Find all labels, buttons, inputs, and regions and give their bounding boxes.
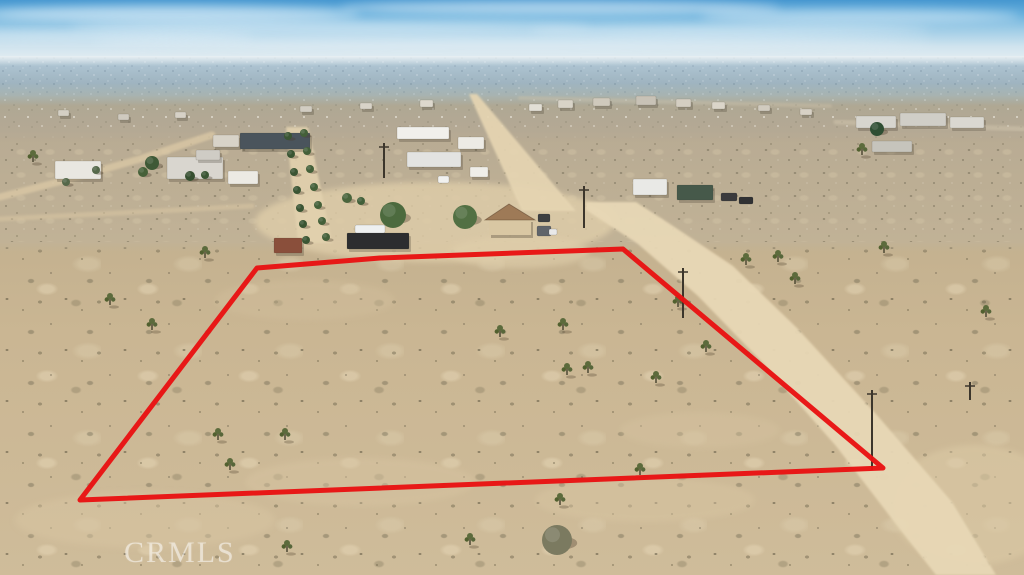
- joshua-tree-shadow: [559, 505, 569, 508]
- joshua-tree: [701, 344, 705, 348]
- joshua-tree: [495, 329, 499, 333]
- cloud: [700, 9, 1020, 23]
- mobile-home: [900, 113, 946, 126]
- small-shed: [470, 167, 488, 177]
- joshua-tree: [987, 309, 991, 313]
- distant-house: [118, 114, 129, 120]
- tree-highlight: [63, 179, 67, 183]
- joshua-tree: [231, 462, 235, 466]
- joshua-tree: [568, 367, 572, 371]
- joshua-tree: [747, 257, 751, 261]
- joshua-tree-shadow: [794, 284, 804, 287]
- rv-trailer: [633, 179, 667, 195]
- joshua-tree: [555, 497, 559, 501]
- joshua-tree-shadow: [883, 253, 893, 256]
- tree-highlight: [358, 198, 362, 202]
- vehicle: [739, 197, 753, 204]
- distant-house: [300, 106, 312, 112]
- joshua-tree: [773, 254, 777, 258]
- joshua-tree: [657, 375, 661, 379]
- joshua-tree: [863, 147, 867, 151]
- joshua-tree: [28, 154, 32, 158]
- joshua-tree-shadow: [705, 352, 715, 355]
- property-boundary-line: [80, 249, 883, 500]
- joshua-tree: [501, 329, 505, 333]
- tree-highlight: [323, 234, 327, 238]
- joshua-tree-shadow: [286, 552, 296, 555]
- joshua-tree: [635, 467, 639, 471]
- joshua-tree-shadow: [655, 383, 665, 386]
- joshua-tree: [213, 432, 217, 436]
- tree-highlight: [93, 167, 97, 171]
- tree-highlight: [285, 133, 289, 137]
- joshua-tree: [561, 497, 565, 501]
- joshua-tree-shadow: [562, 330, 572, 333]
- scene-overlay: [0, 0, 1024, 575]
- tree-highlight: [146, 157, 153, 164]
- joshua-tree-shadow: [229, 470, 239, 473]
- vehicle: [721, 193, 737, 201]
- joshua-tree-shadow: [32, 162, 42, 165]
- tree-highlight: [202, 172, 206, 176]
- distant-house: [758, 105, 770, 111]
- joshua-tree: [280, 432, 284, 436]
- distant-house: [676, 99, 691, 107]
- distant-house: [558, 100, 573, 108]
- cloud: [92, 36, 932, 48]
- trailer: [458, 137, 484, 149]
- long-trailer: [407, 152, 461, 167]
- joshua-tree: [282, 544, 286, 548]
- joshua-tree-shadow: [777, 262, 787, 265]
- joshua-tree-shadow: [985, 317, 995, 320]
- cloud: [530, 24, 930, 36]
- joshua-tree: [225, 462, 229, 466]
- vehicle: [549, 229, 557, 235]
- mls-watermark: CRMLS: [124, 536, 236, 570]
- tree-highlight: [383, 204, 396, 217]
- tree-highlight: [343, 194, 348, 199]
- sand-patch: [535, 478, 755, 522]
- joshua-tree: [641, 467, 645, 471]
- distant-house: [58, 110, 69, 116]
- tree-highlight: [301, 130, 305, 134]
- joshua-tree: [583, 365, 587, 369]
- vehicle: [538, 214, 550, 222]
- joshua-tree: [879, 245, 883, 249]
- joshua-tree-shadow: [217, 440, 227, 443]
- joshua-tree-shadow: [204, 258, 214, 261]
- joshua-tree: [219, 432, 223, 436]
- joshua-tree: [981, 309, 985, 313]
- joshua-tree: [147, 322, 151, 326]
- joshua-tree: [471, 537, 475, 541]
- tree-highlight: [303, 237, 307, 241]
- joshua-tree: [707, 344, 711, 348]
- distant-house: [175, 112, 186, 118]
- distant-house: [712, 102, 725, 109]
- joshua-tree: [564, 322, 568, 326]
- joshua-tree: [111, 297, 115, 301]
- tree-highlight: [300, 221, 304, 225]
- joshua-tree: [288, 544, 292, 548]
- mobile-home: [950, 117, 984, 128]
- joshua-tree: [465, 537, 469, 541]
- joshua-tree: [651, 375, 655, 379]
- joshua-tree-shadow: [861, 155, 871, 158]
- tree-highlight: [315, 202, 319, 206]
- joshua-tree: [153, 322, 157, 326]
- joshua-tree: [206, 250, 210, 254]
- tree-highlight: [545, 527, 560, 542]
- joshua-tree-shadow: [151, 330, 161, 333]
- main-house-wall: [489, 219, 531, 235]
- joshua-tree: [34, 154, 38, 158]
- rv: [872, 141, 912, 152]
- distant-house: [636, 96, 656, 105]
- tree-highlight: [186, 172, 191, 177]
- mobile-home: [397, 127, 449, 139]
- joshua-tree: [741, 257, 745, 261]
- tree-highlight: [319, 218, 323, 222]
- tree-highlight: [307, 166, 311, 170]
- tree-highlight: [294, 187, 298, 191]
- joshua-tree: [286, 432, 290, 436]
- sand-patch: [620, 412, 780, 448]
- joshua-tree-shadow: [587, 373, 597, 376]
- joshua-tree: [857, 147, 861, 151]
- trail-left: [0, 206, 252, 219]
- white-shed: [228, 171, 258, 184]
- aerial-listing-photo: CRMLS: [0, 0, 1024, 575]
- joshua-tree-shadow: [499, 337, 509, 340]
- shipping-container: [347, 233, 409, 249]
- joshua-tree: [589, 365, 593, 369]
- joshua-tree: [673, 299, 677, 303]
- joshua-tree-shadow: [284, 440, 294, 443]
- tree-highlight: [297, 205, 301, 209]
- red-shed: [274, 238, 302, 253]
- joshua-tree-shadow: [469, 545, 479, 548]
- joshua-tree: [558, 322, 562, 326]
- tree-highlight: [871, 123, 878, 130]
- outbuilding: [213, 135, 239, 147]
- distant-house: [593, 98, 610, 106]
- tree-highlight: [304, 148, 308, 152]
- tree-highlight: [455, 207, 467, 219]
- joshua-tree: [105, 297, 109, 301]
- house-left-wing: [196, 150, 220, 160]
- distant-house: [420, 100, 433, 107]
- distant-house: [360, 103, 372, 109]
- green-building: [677, 185, 713, 200]
- joshua-tree: [779, 254, 783, 258]
- distant-house: [800, 109, 812, 115]
- joshua-tree: [790, 276, 794, 280]
- tree-highlight: [288, 151, 292, 155]
- vehicle: [438, 176, 449, 183]
- joshua-tree: [796, 276, 800, 280]
- distant-house: [529, 104, 542, 111]
- cloud: [340, 1, 780, 15]
- joshua-tree-shadow: [566, 375, 576, 378]
- joshua-tree: [200, 250, 204, 254]
- joshua-tree-shadow: [745, 265, 755, 268]
- joshua-tree: [562, 367, 566, 371]
- tree-highlight: [291, 169, 295, 173]
- vehicle: [355, 225, 385, 233]
- tree-highlight: [311, 184, 315, 188]
- tree-highlight: [139, 168, 144, 173]
- dark-hangar: [240, 133, 310, 149]
- joshua-tree-shadow: [109, 305, 119, 308]
- sand-patch: [245, 458, 475, 506]
- cloud: [0, 6, 360, 22]
- cloud: [70, 21, 590, 33]
- joshua-tree: [885, 245, 889, 249]
